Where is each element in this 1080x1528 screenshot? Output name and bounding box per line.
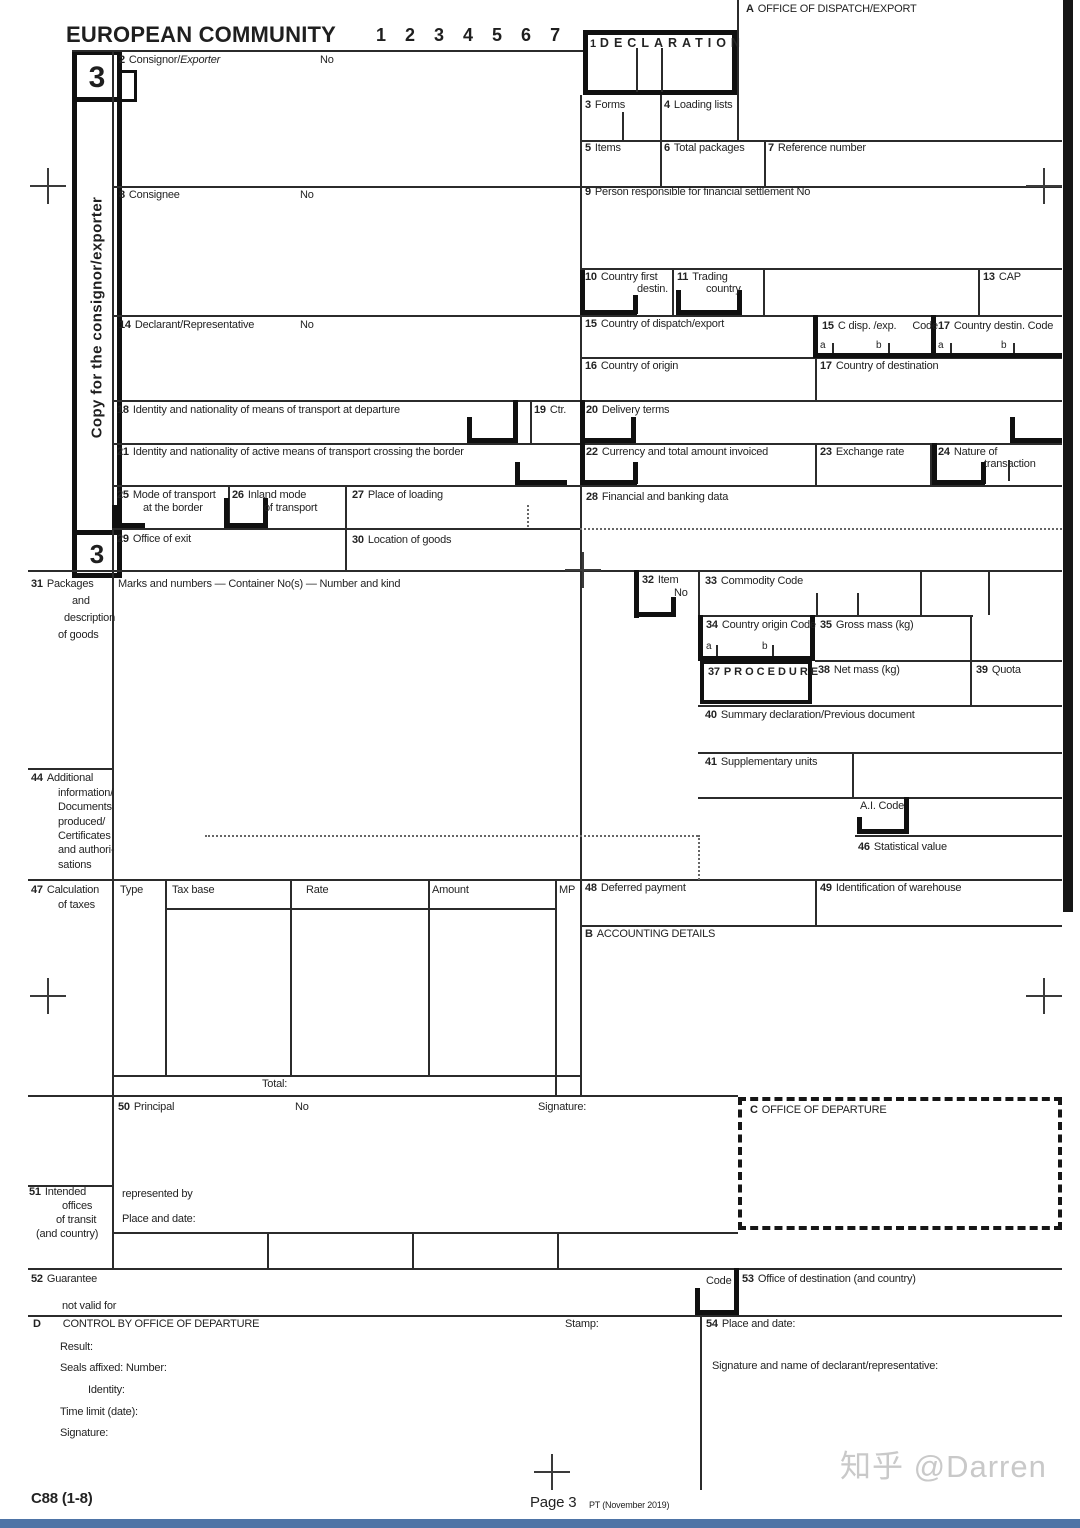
box25-at-border-label: at the border xyxy=(143,502,203,514)
box33-commodity-code-label: 33Commodity Code xyxy=(705,575,803,587)
box17c-code-label: 17Country destin. Code xyxy=(938,320,1053,332)
form-line xyxy=(737,0,739,140)
label-part: Net mass (kg) xyxy=(834,664,900,676)
form-line xyxy=(28,1315,1062,1317)
label-part: 47 xyxy=(31,884,43,896)
box19-ctr-label: 19Ctr. xyxy=(534,404,566,416)
box2-no: No xyxy=(320,54,334,66)
label-part: Country first xyxy=(601,271,658,283)
thick-code-bracket xyxy=(813,315,818,357)
section-d-control-label: DCONTROL BY OFFICE OF DEPARTURE xyxy=(33,1318,259,1330)
label-part: 24 xyxy=(938,446,950,458)
box11-trading-label: 11Trading xyxy=(677,271,728,283)
box4-loading-lists-label: 4Loading lists xyxy=(664,99,732,111)
label-part: Gross mass (kg) xyxy=(836,619,914,631)
box34-a: a xyxy=(706,641,711,652)
label-part: Statistical value xyxy=(874,841,947,853)
box46-statistical-value-label: 46Statistical value xyxy=(858,841,947,853)
box52-not-valid-label: not valid for xyxy=(62,1300,116,1312)
form-line xyxy=(28,570,1062,572)
label-part: 28 xyxy=(586,491,598,503)
form-line xyxy=(580,268,1062,270)
box44-l5: Certificates xyxy=(58,830,111,842)
form-line xyxy=(764,140,766,186)
crop-mark xyxy=(551,1454,553,1490)
thick-code-bracket xyxy=(671,597,676,614)
label-part: 5 xyxy=(585,142,591,154)
form-line xyxy=(112,443,1062,445)
box44-l4: produced/ xyxy=(58,816,105,828)
label-part: 26 xyxy=(232,489,244,501)
label-part: Country origin Code xyxy=(722,619,816,631)
label-part: 27 xyxy=(352,489,364,501)
box41-supplementary-units-label: 41Supplementary units xyxy=(705,756,817,768)
thick-code-bracket xyxy=(676,290,681,314)
label-part: 10 xyxy=(585,271,597,283)
box50-signature: Signature: xyxy=(538,1101,586,1113)
label-part: 23 xyxy=(820,446,832,458)
form-line xyxy=(345,485,347,570)
label-part: Currency and total amount invoiced xyxy=(602,446,768,458)
box50-principal-label: 50Principal xyxy=(118,1101,174,1113)
form-line xyxy=(112,400,1062,402)
label-part: 53 xyxy=(742,1273,754,1285)
box44-additional-label: 44Additional xyxy=(31,772,93,784)
label-part: Country destin. Code xyxy=(954,320,1053,332)
form-line xyxy=(988,570,990,615)
crop-mark xyxy=(47,168,49,204)
form-line xyxy=(622,112,624,140)
box15c-code-label: 15C disp. /exp.Code xyxy=(822,320,938,332)
form-line xyxy=(112,1075,580,1077)
tax-col-type: Type xyxy=(120,884,143,896)
form-line xyxy=(267,1232,269,1268)
label-part: Trading xyxy=(692,271,728,283)
box32-no-label: No xyxy=(674,587,688,599)
form-line xyxy=(852,752,854,797)
label-part: Identity and nationality of active means… xyxy=(133,446,464,458)
form-line xyxy=(978,268,980,315)
c88-form-scan: EUROPEAN COMMUNITY 1 2 3 4 5 6 7 AOFFICE… xyxy=(0,0,1080,1528)
label-part: 31 xyxy=(31,578,43,590)
form-line xyxy=(580,95,582,1095)
form-line xyxy=(28,1268,1062,1270)
watermark: 知乎 @Darren xyxy=(840,1441,1047,1486)
thick-code-bracket xyxy=(580,480,637,485)
box51-intended-label: 51Intended xyxy=(29,1186,86,1198)
thick-code-bracket xyxy=(695,1310,739,1315)
box17c-a: a xyxy=(938,340,943,351)
form-line xyxy=(290,880,292,1075)
form-line xyxy=(428,880,430,1075)
box44-l3: Documents xyxy=(58,801,112,813)
label-part: 25 xyxy=(117,489,129,501)
dotted-line xyxy=(205,835,698,837)
box17c-b: b xyxy=(1001,340,1006,351)
label-part: Principal xyxy=(134,1101,174,1113)
form-line xyxy=(698,752,1062,754)
box47-of-taxes-label: of taxes xyxy=(58,899,95,911)
label-part: 22 xyxy=(586,446,598,458)
label-part: Location of goods xyxy=(368,534,451,546)
thick-code-bracket xyxy=(515,480,567,485)
tax-col-rate: Rate xyxy=(306,884,328,896)
label-part: 16 xyxy=(585,360,597,372)
box34-country-origin-label: 34Country origin Code xyxy=(706,619,816,631)
thick-code-bracket xyxy=(634,612,676,617)
label-part: CONTROL BY OFFICE OF DEPARTURE xyxy=(63,1318,260,1330)
box26-inland-mode-label: 26Inland mode xyxy=(232,489,306,501)
form-line xyxy=(698,705,1062,707)
sidebar-copy-banner: Copy for the consignor/exporter xyxy=(72,97,122,537)
form-line xyxy=(970,615,972,705)
form-line xyxy=(555,880,557,1095)
crop-mark xyxy=(582,552,584,588)
thick-code-bracket xyxy=(932,443,937,485)
label-part: CAP xyxy=(999,271,1021,283)
thick-code-bracket xyxy=(112,523,145,528)
box50-no: No xyxy=(295,1101,309,1113)
label-part: D xyxy=(33,1318,41,1330)
thick-code-bracket xyxy=(633,295,638,314)
label-part: 32 xyxy=(642,574,654,586)
label-part: Code xyxy=(912,320,938,332)
label-part: 54 xyxy=(706,1318,718,1330)
office-of-departure-box xyxy=(738,1097,1062,1230)
label-part: 20 xyxy=(586,404,598,416)
label-part: Loading lists xyxy=(674,99,733,111)
label-part: 40 xyxy=(705,709,717,721)
form-line xyxy=(816,593,818,615)
label-part: 34 xyxy=(706,619,718,631)
label-part: Packages xyxy=(47,578,94,590)
box48-deferred-payment-label: 48Deferred payment xyxy=(585,882,686,894)
thick-code-bracket xyxy=(1010,438,1062,443)
form-line xyxy=(112,1232,738,1234)
form-line xyxy=(28,1095,738,1097)
box11-country-label: country xyxy=(706,283,741,295)
box23-exchange-rate-label: 23Exchange rate xyxy=(820,446,904,458)
box31-description-label: description xyxy=(64,612,115,624)
label-part: OFFICE OF DEPARTURE xyxy=(762,1104,887,1116)
label-part: Copy for the consignor/exporter xyxy=(89,196,106,438)
label-part: 15 xyxy=(585,318,597,330)
form-line xyxy=(112,50,114,1268)
box28-financial-banking-label: 28Financial and banking data xyxy=(586,491,728,503)
box5-items-label: 5Items xyxy=(585,142,621,154)
label-part: Country of destination xyxy=(836,360,939,372)
section-b-accounting-label: BACCOUNTING DETAILS xyxy=(585,928,715,940)
label-part: Commodity Code xyxy=(721,575,803,587)
box24-transaction-label: transaction xyxy=(984,458,1036,470)
box16-origin-label: 16Country of origin xyxy=(585,360,678,372)
form-line xyxy=(855,835,1062,837)
thick-code-bracket xyxy=(813,353,1062,358)
represented-by-label: represented by xyxy=(122,1188,193,1200)
label-part: Item xyxy=(658,574,679,586)
label-part: 39 xyxy=(976,664,988,676)
box38-net-mass-label: 38Net mass (kg) xyxy=(818,664,900,676)
label-part: 33 xyxy=(705,575,717,587)
thick-code-bracket xyxy=(633,462,638,484)
label-part: DECLARATION xyxy=(600,36,745,50)
box10-destin-label: destin. xyxy=(637,283,668,295)
label-part: 2 xyxy=(119,54,125,66)
label-part: Inland mode xyxy=(248,489,306,501)
box47-calculation-label: 47Calculation xyxy=(31,884,99,896)
box31-and-label: and xyxy=(72,595,90,607)
form-code: C88 (1-8) xyxy=(31,1490,93,1507)
label-part: 44 xyxy=(31,772,43,784)
tax-col-amount: Amount xyxy=(432,884,469,896)
dotted-line xyxy=(580,528,1062,530)
label-part: 51 xyxy=(29,1186,41,1198)
form-line xyxy=(857,593,859,615)
bottom-blue-bar xyxy=(0,1519,1080,1528)
label-part: Person responsible for financial settlem… xyxy=(595,186,810,198)
label-part: Total packages xyxy=(674,142,745,154)
label-part: 3 xyxy=(585,99,591,111)
label-part: 4 xyxy=(664,99,670,111)
label-part: 14 xyxy=(119,319,131,331)
dotted-line xyxy=(527,505,529,527)
box29-office-exit-label: 29Office of exit xyxy=(117,533,191,545)
label-part: Delivery terms xyxy=(602,404,670,416)
box2-consignor-label: 2Consignor/Exporter xyxy=(119,54,220,66)
marks-numbers-header: Marks and numbers — Container No(s) — Nu… xyxy=(118,578,400,590)
form-line xyxy=(165,880,167,1075)
label-part: C xyxy=(750,1104,758,1116)
label-part: Office of destination (and country) xyxy=(758,1273,916,1285)
thick-code-bracket xyxy=(580,400,585,443)
box26-of-transport-label: of transport xyxy=(264,502,317,514)
label-part: ACCOUNTING DETAILS xyxy=(597,928,715,940)
form-line xyxy=(165,908,555,910)
form-line xyxy=(112,485,1062,487)
label-part: 37 xyxy=(708,666,720,678)
form-title: EUROPEAN COMMUNITY xyxy=(66,22,336,48)
box15c-a: a xyxy=(820,340,825,351)
stamp-label: Stamp: xyxy=(565,1318,599,1330)
box21-transport-border-label: 21Identity and nationality of active mea… xyxy=(117,446,464,458)
box54-place-date-label: 54Place and date: xyxy=(706,1318,795,1330)
crop-mark xyxy=(1043,168,1045,204)
identity-label: Identity: xyxy=(88,1384,125,1396)
label-part: 11 xyxy=(677,271,688,283)
label-part: 46 xyxy=(858,841,870,853)
box3-forms-label: 3Forms xyxy=(585,99,625,111)
box24-nature-label: 24Nature of xyxy=(938,446,997,458)
label-part: Exchange rate xyxy=(836,446,904,458)
box32-item-label: 32Item xyxy=(642,574,678,586)
label-part: 48 xyxy=(585,882,597,894)
box31-of-goods-label: of goods xyxy=(58,629,99,641)
box7-reference-number-label: 7Reference number xyxy=(768,142,866,154)
dotted-line xyxy=(698,835,700,880)
box17-destination-label: 17Country of destination xyxy=(820,360,938,372)
label-part: 6 xyxy=(664,142,670,154)
label-part: 8 xyxy=(119,189,125,201)
label-part: 15 xyxy=(822,320,834,332)
form-line xyxy=(72,50,583,52)
form-line xyxy=(412,1232,414,1268)
box35-gross-mass-label: 35Gross mass (kg) xyxy=(820,619,914,631)
label-part: 18 xyxy=(117,404,129,416)
label-part: Items xyxy=(595,142,621,154)
label-part: Place and date: xyxy=(722,1318,795,1330)
box14-declarant-label: 14Declarant/Representative xyxy=(119,319,254,331)
box39-quota-label: 39Quota xyxy=(976,664,1021,676)
label-part: Identity and nationality of means of tra… xyxy=(133,404,400,416)
box34-b: b xyxy=(762,641,767,652)
box18-transport-departure-label: 18Identity and nationality of means of t… xyxy=(117,404,400,416)
label-part: Reference number xyxy=(778,142,866,154)
box22-currency-label: 22Currency and total amount invoiced xyxy=(586,446,768,458)
label-part: Consignor/ xyxy=(129,54,180,66)
ai-code-label: A.I. Code xyxy=(860,800,904,812)
box27-place-loading-label: 27Place of loading xyxy=(352,489,443,501)
thick-code-bracket xyxy=(580,443,585,485)
label-part: Declarant/Representative xyxy=(135,319,254,331)
box9-financial-settlement-label: 9Person responsible for financial settle… xyxy=(585,186,810,198)
box30-location-goods-label: 30Location of goods xyxy=(352,534,451,546)
label-part: 35 xyxy=(820,619,832,631)
form-line xyxy=(698,615,973,617)
label-part: PROCEDURE xyxy=(724,666,821,678)
label-part: Forms xyxy=(595,99,625,111)
form-line xyxy=(815,443,817,485)
label-part: 52 xyxy=(31,1273,43,1285)
box49-warehouse-label: 49Identification of warehouse xyxy=(820,882,961,894)
signature-label: Signature: xyxy=(60,1427,108,1439)
label-part: 38 xyxy=(818,664,830,676)
form-line xyxy=(920,570,922,615)
box31-packages-label: 31Packages xyxy=(31,578,94,590)
copy-digits: 1 2 3 4 5 6 7 xyxy=(376,25,567,46)
box15-dispatch-label: 15Country of dispatch/export xyxy=(585,318,724,330)
label-part: Office of exit xyxy=(133,533,191,545)
label-part: OFFICE OF DISPATCH/EXPORT xyxy=(758,3,917,15)
place-and-date-label: Place and date: xyxy=(122,1213,195,1225)
box13-cap-label: 13CAP xyxy=(983,271,1021,283)
box37-procedure-label: 37PROCEDURE xyxy=(708,666,821,678)
box54-signature-label: Signature and name of declarant/represen… xyxy=(712,1360,938,1372)
form-line xyxy=(672,268,674,315)
form-line xyxy=(660,95,662,186)
box52-guarantee-label: 52Guarantee xyxy=(31,1273,97,1285)
label-part: 1 xyxy=(590,38,596,50)
label-part: A xyxy=(746,3,754,15)
label-part: 19 xyxy=(534,404,546,416)
label-part: Summary declaration/Previous document xyxy=(721,709,915,721)
form-line xyxy=(557,1232,559,1268)
label-part: 13 xyxy=(983,271,995,283)
label-part: Nature of xyxy=(954,446,997,458)
scan-edge-strip xyxy=(1063,0,1073,912)
box25-mode-transport-label: 25Mode of transport xyxy=(117,489,216,501)
thick-code-bracket xyxy=(224,523,268,528)
thick-code-bracket xyxy=(631,417,636,443)
form-line xyxy=(28,879,1062,881)
thick-code-bracket xyxy=(932,480,985,485)
form-line xyxy=(815,879,817,925)
thick-code-bracket xyxy=(580,438,635,443)
thick-code-bracket xyxy=(904,797,909,834)
label-part: Guarantee xyxy=(47,1273,97,1285)
form-version: PT (November 2019) xyxy=(589,1500,669,1510)
crop-mark xyxy=(47,978,49,1014)
label-part: Quota xyxy=(992,664,1021,676)
label-part: 7 xyxy=(768,142,774,154)
page-number: Page 3 xyxy=(530,1494,576,1511)
tax-col-mp: MP xyxy=(559,884,575,896)
box52-code-label: Code xyxy=(706,1275,732,1287)
label-part: Ctr. xyxy=(550,404,566,416)
form-line xyxy=(530,400,532,443)
label-part: Additional xyxy=(47,772,93,784)
box44-l2: information/ xyxy=(58,787,113,799)
label-part: C disp. /exp. xyxy=(838,320,897,332)
box44-l6: and authori- xyxy=(58,844,114,856)
label-part: 17 xyxy=(820,360,832,372)
box8-no: No xyxy=(300,189,314,201)
label-part: 30 xyxy=(352,534,364,546)
form-line xyxy=(661,48,663,92)
thick-code-bracket xyxy=(634,570,639,618)
thick-code-bracket xyxy=(676,310,742,315)
box14-no: No xyxy=(300,319,314,331)
box44-l7: sations xyxy=(58,859,91,871)
section-c-departure-label: COFFICE OF DEPARTURE xyxy=(750,1104,887,1116)
thick-code-bracket xyxy=(580,310,637,315)
label-part: 29 xyxy=(117,533,129,545)
label-part: B xyxy=(585,928,593,940)
box51-of-transit-label: of transit xyxy=(56,1214,96,1226)
label-part: 17 xyxy=(938,320,950,332)
box15c-b: b xyxy=(876,340,881,351)
box1-declaration-label: 1DECLARATION xyxy=(590,36,745,50)
thick-code-bracket xyxy=(734,1268,739,1315)
box53-office-destination-label: 53Office of destination (and country) xyxy=(742,1273,916,1285)
label-part: Calculation xyxy=(47,884,99,896)
box40-summary-declaration-label: 40Summary declaration/Previous document xyxy=(705,709,915,721)
form-line xyxy=(28,768,112,770)
thick-code-bracket xyxy=(513,400,518,443)
box10-country-first-label: 10Country first xyxy=(585,271,658,283)
tax-total-label: Total: xyxy=(262,1078,287,1090)
form-line xyxy=(698,570,700,615)
time-limit-label: Time limit (date): xyxy=(60,1406,138,1418)
label-part: 50 xyxy=(118,1101,130,1113)
box2-small-rect xyxy=(117,70,137,102)
label-part: Place of loading xyxy=(368,489,443,501)
label-part: Identification of warehouse xyxy=(836,882,961,894)
label-part: Country of dispatch/export xyxy=(601,318,724,330)
seals-affixed-label: Seals affixed: Number: xyxy=(60,1362,167,1374)
label-part: Mode of transport xyxy=(133,489,216,501)
label-part: Intended xyxy=(45,1186,86,1198)
result-label: Result: xyxy=(60,1341,93,1353)
form-line xyxy=(698,797,1062,799)
label-part: Consignee xyxy=(129,189,180,201)
form-line xyxy=(112,315,1062,317)
label-part: Financial and banking data xyxy=(602,491,728,503)
thick-code-bracket xyxy=(467,438,517,443)
label-part: Deferred payment xyxy=(601,882,686,894)
tax-col-tax-base: Tax base xyxy=(172,884,214,896)
label-part: Exporter xyxy=(180,54,220,66)
label-part: 9 xyxy=(585,186,591,198)
